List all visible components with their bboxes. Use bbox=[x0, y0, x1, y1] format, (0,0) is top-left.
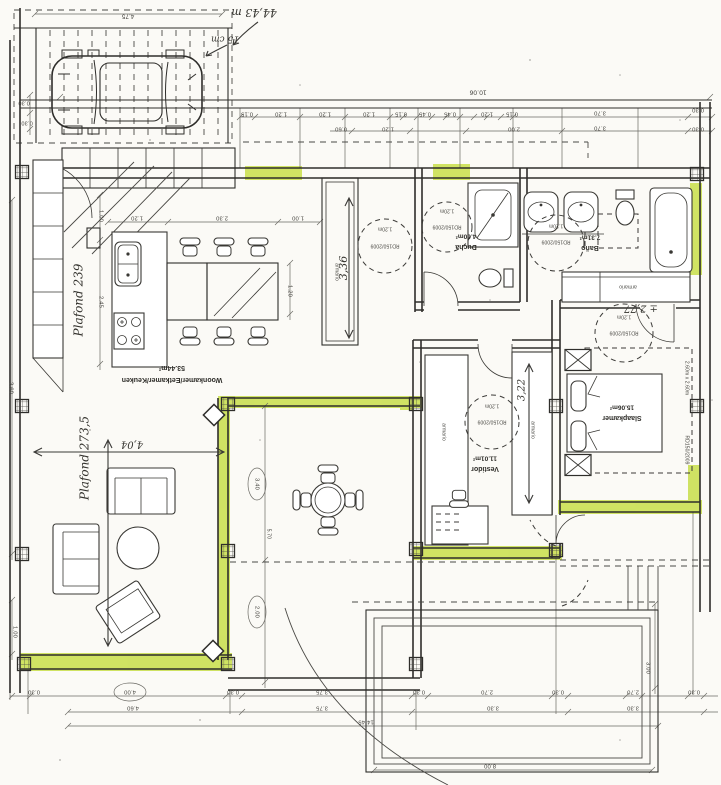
column bbox=[16, 548, 29, 561]
closet-label-bano: armario bbox=[619, 284, 637, 290]
bed-clearance-code: RD150/2009 bbox=[684, 435, 690, 464]
dim-top-a10: 3.70 bbox=[594, 109, 606, 115]
terrace-chair bbox=[293, 490, 311, 510]
dining-chair bbox=[214, 327, 234, 345]
floor-plan-sheet: 4.750.300.3010.060.151.201.201.200.150.4… bbox=[0, 0, 721, 785]
dim-top-b3: 2.00 bbox=[508, 125, 520, 131]
column bbox=[18, 658, 31, 671]
kitchen bbox=[33, 160, 278, 392]
dim-top-b2: 1.20 bbox=[382, 125, 394, 131]
toilet-ducha bbox=[479, 269, 513, 287]
dim-bot-a6: 2.70 bbox=[481, 688, 493, 694]
column bbox=[691, 400, 704, 413]
dining-chair bbox=[180, 238, 200, 256]
vestidor-door bbox=[478, 344, 512, 378]
dim-top-b1: 0.60 bbox=[335, 125, 347, 131]
hand-living-width: 4,04 bbox=[121, 439, 144, 450]
dim-left-030-a: 0.30 bbox=[18, 100, 30, 106]
circle-vestidor-dia: 1.20m bbox=[485, 403, 499, 409]
carport-outline bbox=[14, 10, 232, 143]
dim-bot-a4: 3.75 bbox=[316, 688, 328, 694]
coffee-table bbox=[117, 527, 159, 569]
wall-vestidor-left bbox=[413, 340, 421, 678]
hand-ceiling-kitchen: Plafond 239 bbox=[72, 263, 86, 337]
dim-top-b4: 3.70 bbox=[594, 124, 606, 130]
carport bbox=[14, 10, 232, 143]
dim-left-030-b: 0.30 bbox=[21, 120, 33, 126]
dim-kitchen-v1: 1.00 bbox=[97, 210, 103, 222]
wall-ducha-left bbox=[415, 168, 422, 312]
dim-top-b5: 0.30 bbox=[692, 125, 704, 131]
pillow bbox=[571, 421, 586, 451]
dim-bot-b4: 3.30 bbox=[627, 704, 639, 710]
pergola-slats bbox=[50, 30, 218, 140]
column bbox=[16, 166, 29, 179]
dim-top-a1: 0.15 bbox=[241, 110, 253, 116]
room-label-bano: Baño bbox=[581, 244, 599, 251]
dim-left-wall-b: 1.00 bbox=[11, 626, 17, 638]
dim-top-a2: 1.20 bbox=[275, 110, 287, 116]
desk-chair bbox=[450, 490, 469, 507]
dim-bot-a5: 0.30 bbox=[413, 688, 425, 694]
bed bbox=[567, 374, 662, 452]
room-area-ducha: 4.60m² bbox=[455, 232, 476, 239]
column bbox=[16, 400, 29, 413]
dim-bot-b1: 4.60 bbox=[127, 704, 139, 710]
dim-bot-b2: 3.75 bbox=[316, 704, 328, 710]
column bbox=[410, 398, 423, 411]
dining-table bbox=[167, 263, 278, 320]
room-label-vestidor: Vestidor bbox=[471, 465, 499, 472]
car-icon bbox=[52, 50, 202, 134]
terrace-chair bbox=[318, 465, 338, 483]
stove bbox=[114, 313, 144, 349]
dim-top-a5: 0.15 bbox=[395, 110, 407, 116]
column bbox=[222, 398, 235, 411]
wall-vestidor-top bbox=[413, 340, 560, 348]
dim-terrace-2: 2.00 bbox=[253, 606, 259, 618]
room-label-woonkamer: Woonkamer/Eetkamer/Keuken bbox=[122, 376, 223, 383]
dim-bot-a1: 0.30 bbox=[28, 688, 40, 694]
column bbox=[550, 544, 563, 557]
dim-pool-height: 3.00 bbox=[644, 662, 650, 674]
pool-terrace bbox=[285, 566, 658, 785]
dim-top-a9: 0.15 bbox=[506, 110, 518, 116]
armchair bbox=[95, 580, 161, 644]
dim-bot-a2: 4.00 bbox=[124, 688, 136, 694]
dining-chair bbox=[214, 238, 234, 256]
dim-top-a8: 1.20 bbox=[481, 110, 493, 116]
dim-top-a7: 0.45 bbox=[444, 110, 456, 116]
wall-left-outer bbox=[10, 8, 20, 693]
bed-clearance-size: 2.60m x 2.60m bbox=[684, 361, 690, 395]
hand-note-total: 44,43 m bbox=[231, 6, 277, 19]
sofa-2 bbox=[53, 524, 99, 594]
dim-overall-top: 10.06 bbox=[469, 88, 486, 95]
note-arrow-2 bbox=[206, 45, 227, 56]
desk bbox=[432, 506, 488, 544]
terrace-chair bbox=[345, 490, 363, 510]
circle-slaapkamer-dia: 1.20m bbox=[617, 314, 631, 320]
sofa-1 bbox=[107, 468, 175, 514]
dim-top-a3: 1.20 bbox=[319, 110, 331, 116]
dining-chair bbox=[248, 238, 268, 256]
hand-wardrobe-length: 3,36 bbox=[337, 256, 350, 281]
column bbox=[410, 543, 423, 556]
ducha-door bbox=[424, 272, 458, 306]
dashed-arc-1 bbox=[530, 520, 556, 546]
dim-pool-width: 8.00 bbox=[484, 762, 496, 768]
nightstand bbox=[565, 455, 591, 476]
column bbox=[691, 168, 704, 181]
dim-kitchen-v2: 2.45 bbox=[97, 296, 103, 308]
column bbox=[410, 658, 423, 671]
dim-kitchen-2: 2.30 bbox=[216, 214, 228, 220]
wall-terrace-bottom bbox=[228, 678, 420, 690]
room-area-slaapkamer: 15.06m² bbox=[609, 403, 634, 410]
dim-top-a6: 0.45 bbox=[419, 110, 431, 116]
room-area-vestidor: 11.01m² bbox=[472, 454, 497, 461]
nightstand bbox=[565, 350, 591, 371]
dim-site-width: 14.45 bbox=[358, 718, 374, 724]
bathtub bbox=[650, 188, 692, 272]
room-area-bano: 7.31m² bbox=[579, 233, 600, 240]
divider-door bbox=[556, 515, 585, 544]
dim-bot-a3: 0.30 bbox=[227, 688, 239, 694]
dim-top-a4: 1.20 bbox=[363, 110, 375, 116]
terrace-table bbox=[311, 483, 345, 517]
dim-top-a11: 0.30 bbox=[692, 106, 704, 112]
room-label-slaapkamer: Slaapkamer bbox=[602, 414, 642, 421]
closet-label-vestidor-left: armario bbox=[441, 423, 447, 441]
kitchen-cabinets bbox=[33, 160, 63, 392]
wall-ducha-bottom bbox=[415, 302, 520, 310]
slaapkamer-room bbox=[562, 350, 662, 607]
dim-carport-width: 4.75 bbox=[121, 12, 134, 18]
hand-closet-length: ± 2,77 bbox=[623, 303, 657, 314]
hand-ceiling-living: Plafond 273,5 bbox=[78, 416, 92, 501]
toilet-bano bbox=[616, 190, 634, 225]
terrace-chair bbox=[318, 517, 338, 535]
hand-note-wall: 15 cm bbox=[211, 34, 239, 44]
dim-bot-a8: 2.70 bbox=[627, 688, 639, 694]
floor-plan-drawing: 4.750.300.3010.060.151.201.201.200.150.4… bbox=[0, 0, 721, 785]
circle-slaapkamer-code: RD150/2009 bbox=[609, 330, 638, 336]
dim-bot-b3: 3.30 bbox=[487, 704, 499, 710]
living-room bbox=[34, 440, 224, 646]
dim-terrace-3: 5.70 bbox=[266, 529, 272, 540]
dim-bot-a9: 0.30 bbox=[688, 688, 700, 694]
pillow bbox=[571, 381, 586, 411]
dining-chair bbox=[180, 327, 200, 345]
closet-label-vestidor-right: armario bbox=[530, 421, 536, 439]
kitchen-sink bbox=[115, 242, 141, 286]
dim-terrace-1: 3.40 bbox=[253, 478, 259, 490]
dining-chair bbox=[248, 327, 268, 345]
column bbox=[550, 400, 563, 413]
dim-kitchen-3: 1.00 bbox=[292, 214, 304, 220]
circle-ducha-code: RD150/2009 bbox=[432, 224, 461, 230]
room-area-woonkamer: 53.44m² bbox=[158, 364, 185, 371]
site-boundary-top bbox=[20, 100, 712, 108]
wall-house-top bbox=[60, 168, 710, 178]
column bbox=[222, 545, 235, 558]
bano-room bbox=[522, 188, 692, 342]
dim-kitchen-1: 1.20 bbox=[131, 214, 143, 220]
column bbox=[222, 658, 235, 671]
circle-vestidor-code: RD150/2009 bbox=[477, 419, 506, 425]
room-label-ducha: Ducha bbox=[455, 243, 477, 250]
circle-corridor-dia: 1.20m bbox=[378, 226, 392, 232]
vestidor-room bbox=[425, 344, 585, 546]
circle-bano-dia: 1.20m bbox=[549, 223, 563, 229]
dim-bot-a7: 0.30 bbox=[552, 688, 564, 694]
hand-vestidor-length: 3,22 bbox=[517, 379, 528, 401]
circle-corridor-code: RD150/2009 bbox=[370, 243, 399, 249]
circle-ducha-dia: 1.20m bbox=[440, 208, 454, 214]
dim-table-width: 1.20 bbox=[286, 285, 292, 297]
circle-bano-code: RD150/2009 bbox=[541, 239, 570, 245]
wall-ducha-bano-divider bbox=[520, 168, 527, 302]
dim-left-wall-a: 3.60 bbox=[7, 382, 13, 394]
sink-2 bbox=[564, 192, 598, 232]
